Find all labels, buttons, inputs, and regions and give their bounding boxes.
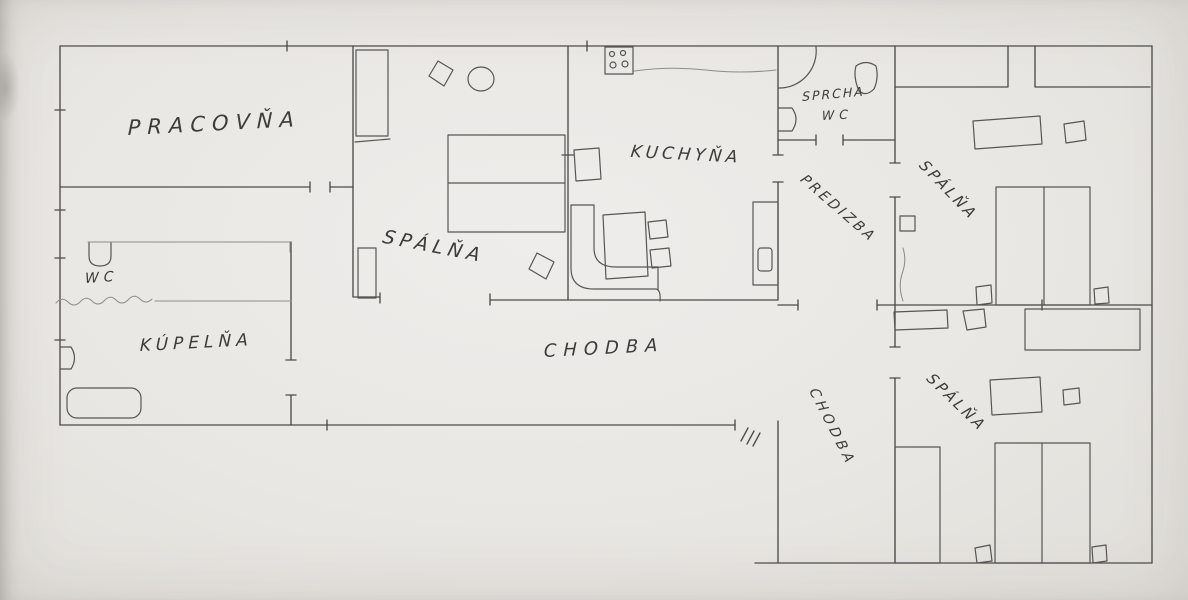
side-table bbox=[1063, 388, 1080, 405]
wall-chodba-north bbox=[490, 294, 778, 305]
entrance-hatch bbox=[741, 428, 760, 446]
kitchen-chair bbox=[648, 220, 668, 239]
stool-diamond-foot bbox=[529, 253, 554, 279]
kitchen-chair bbox=[650, 248, 671, 268]
toilet-left bbox=[89, 243, 111, 266]
kitchen-counter-edge bbox=[634, 68, 776, 72]
bedside-rug bbox=[1094, 287, 1109, 304]
furniture-kitchen bbox=[571, 47, 778, 301]
wardrobe-tall bbox=[356, 50, 388, 136]
wardrobe-small bbox=[358, 248, 376, 298]
room-label-wc: WC bbox=[85, 269, 119, 287]
door-leaf-squiggle bbox=[900, 248, 905, 301]
stove-burner bbox=[610, 52, 615, 57]
wall-predizba-east bbox=[890, 46, 900, 305]
furniture-bedroom-bottom-right bbox=[894, 309, 1140, 563]
shelf bbox=[894, 310, 948, 330]
stove-burner bbox=[610, 62, 616, 68]
stool-diamond bbox=[429, 61, 453, 86]
wardrobe-base-line bbox=[355, 139, 390, 142]
double-bed-top-right bbox=[996, 187, 1090, 305]
shower-curtain-wavy-line bbox=[56, 296, 152, 305]
nightstand bbox=[900, 216, 915, 231]
table bbox=[990, 377, 1042, 415]
washbasin-shower bbox=[779, 108, 796, 131]
floor-plan-drawing bbox=[0, 0, 1188, 600]
small-cabinet bbox=[963, 309, 986, 330]
wall-stub-predizba bbox=[778, 300, 798, 310]
wall-pracovna-south bbox=[60, 182, 353, 192]
bedside-rug bbox=[1092, 545, 1107, 563]
kitchen-cupboard bbox=[753, 202, 778, 285]
wall-kupelna-east bbox=[286, 242, 296, 425]
dimension-ticks bbox=[55, 41, 1042, 430]
wardrobe-wide bbox=[1025, 309, 1140, 350]
stove bbox=[605, 47, 633, 74]
wall-closet-top-bedroom bbox=[895, 46, 1150, 87]
bedside-rug bbox=[976, 285, 992, 305]
stove-burner bbox=[622, 61, 628, 67]
chair-round bbox=[468, 67, 494, 91]
stove-burner bbox=[621, 51, 626, 56]
side-table bbox=[1064, 121, 1086, 143]
bedside-rug bbox=[975, 545, 992, 563]
kitchen-table bbox=[603, 212, 648, 279]
room-label-sprcha-wc: WC bbox=[822, 106, 853, 123]
wc-partition-line bbox=[88, 242, 290, 252]
dresser bbox=[973, 116, 1042, 149]
washbasin-left bbox=[60, 347, 75, 369]
bathtub bbox=[67, 388, 141, 418]
door-swing-arc bbox=[779, 47, 816, 88]
wall-spalna-east bbox=[562, 46, 574, 300]
fridge bbox=[574, 148, 601, 181]
single-bed bbox=[895, 447, 940, 563]
furniture-bedroom-top-right bbox=[900, 116, 1109, 305]
kitchen-cupboard-inset bbox=[758, 248, 772, 271]
floor-plan-sketch: PRACOVŇA SPÁLŇA KUCHYŇA SPRCHA WC PREDIZ… bbox=[0, 0, 1188, 600]
wall-sprcha-south bbox=[778, 135, 895, 145]
